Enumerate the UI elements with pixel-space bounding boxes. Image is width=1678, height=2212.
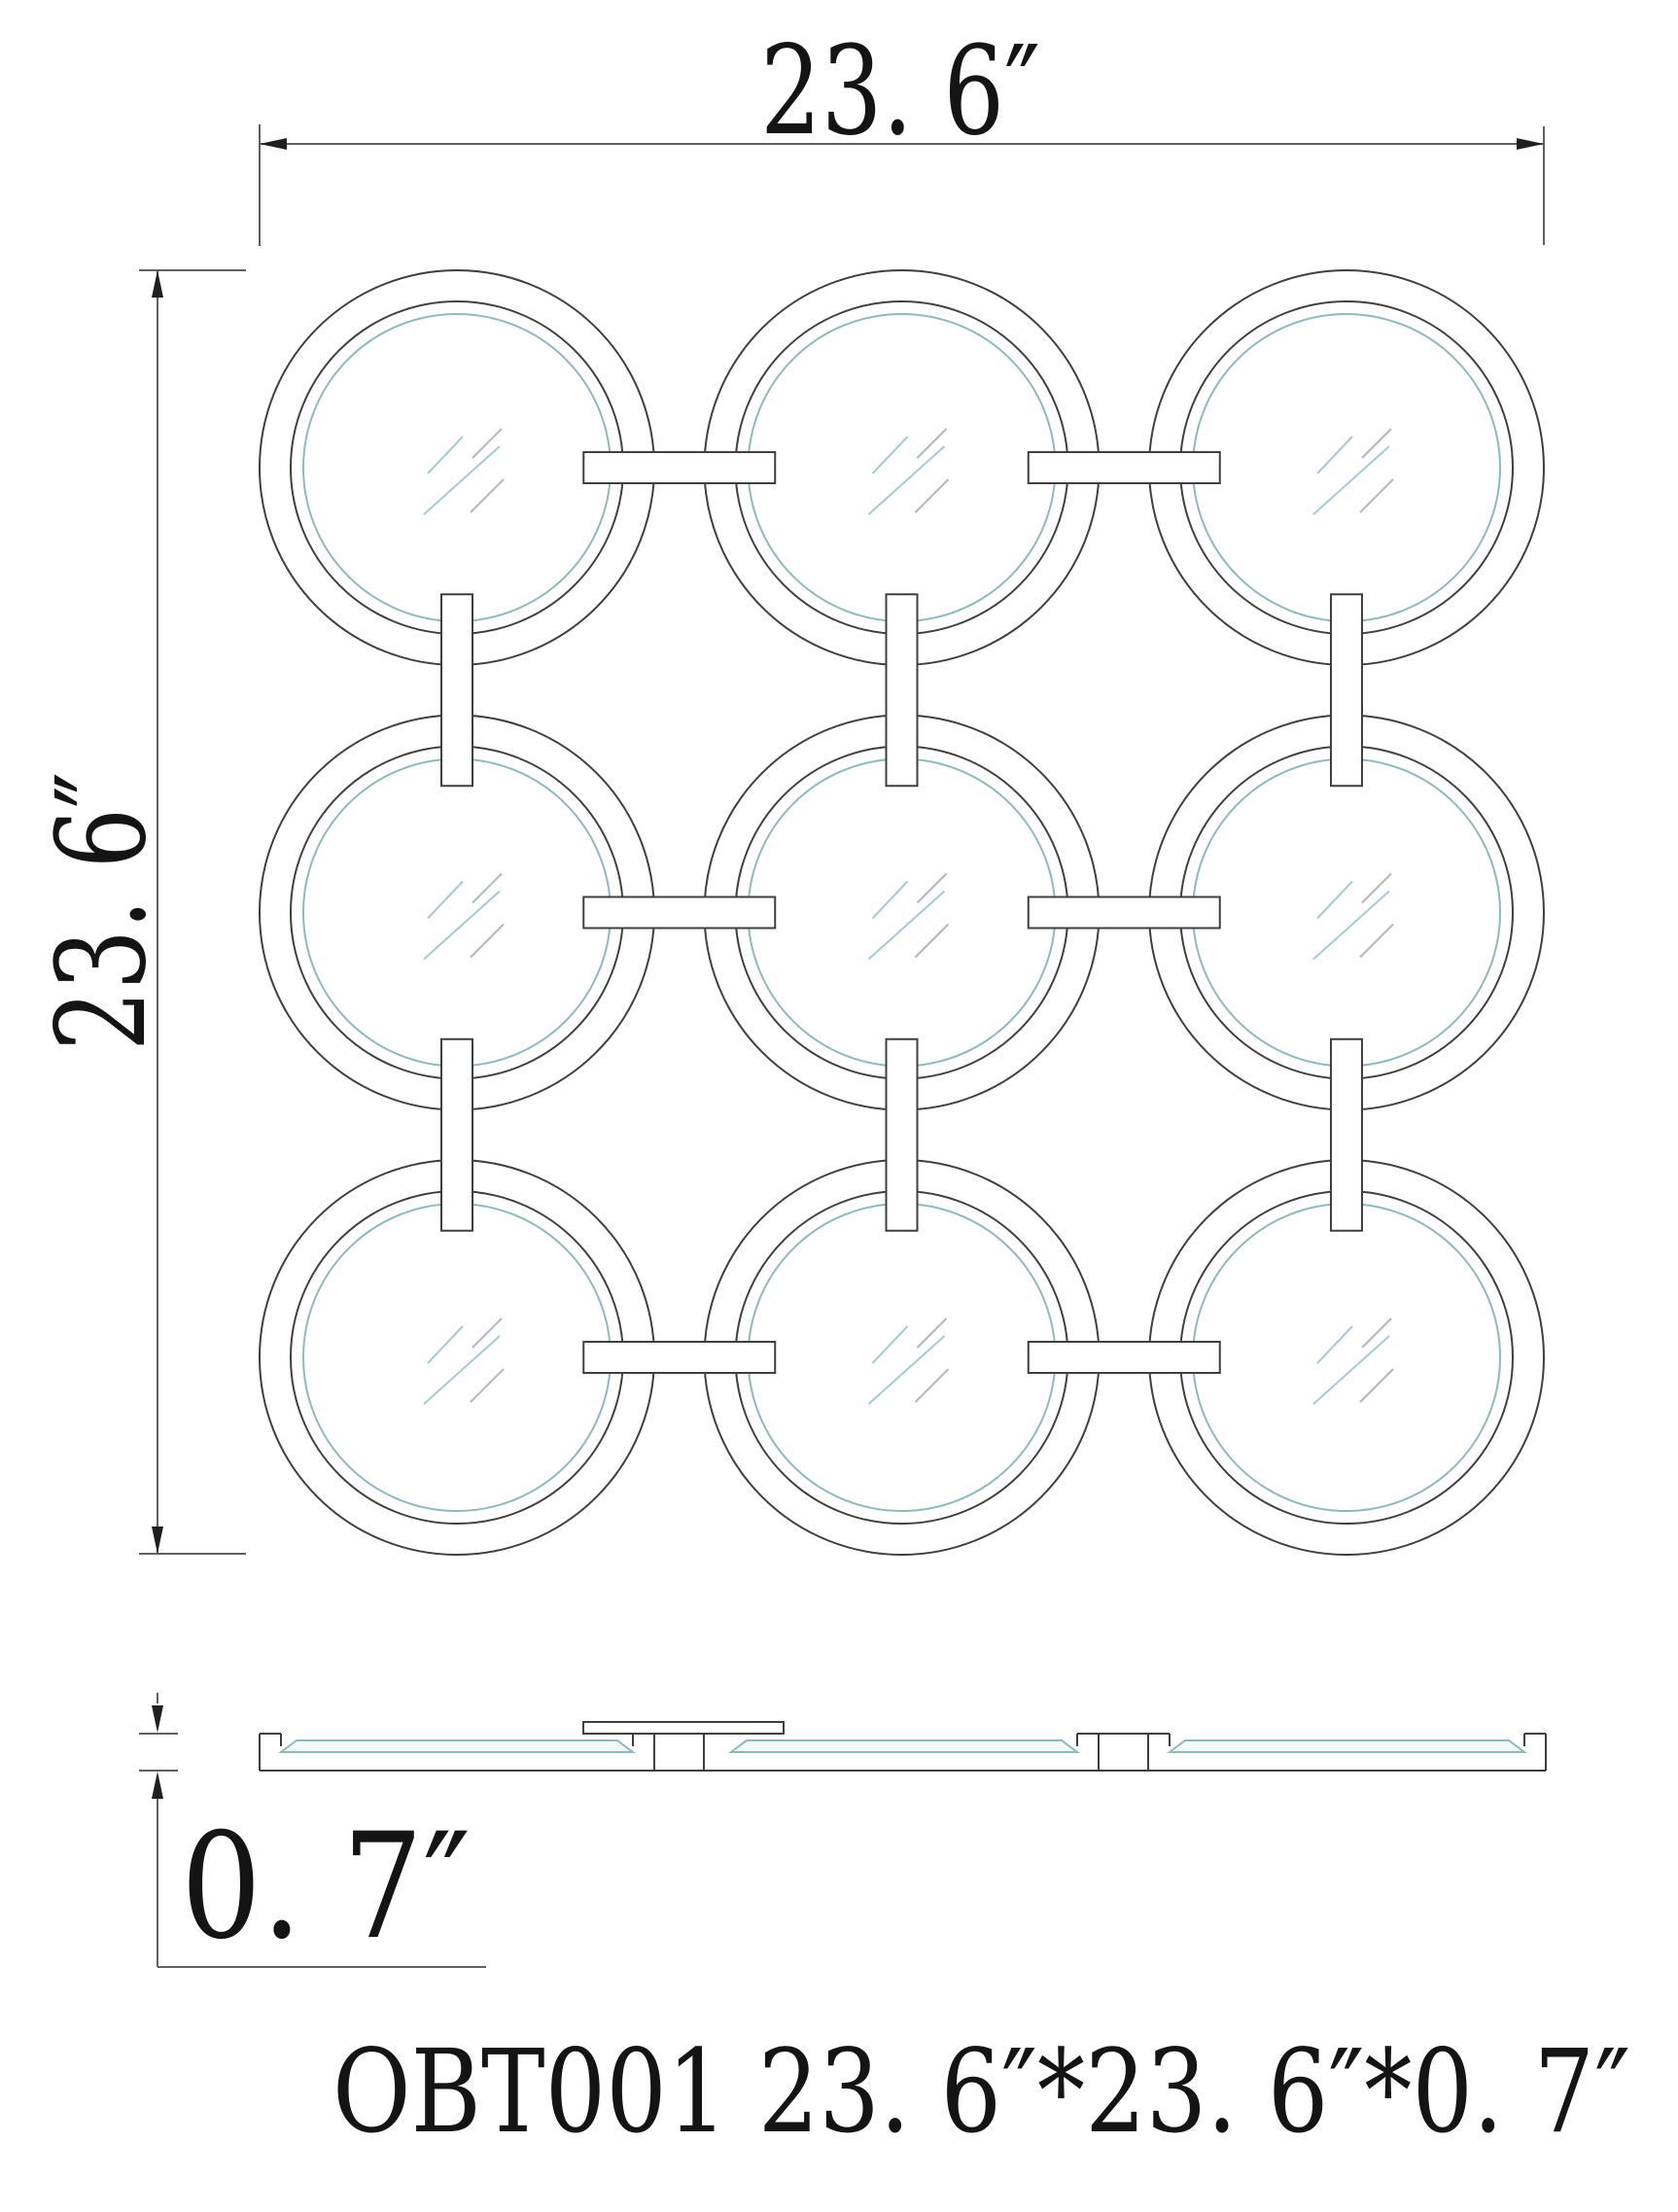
frame-inner-circle [291,301,623,634]
dim-height-label: 23. 6″ [30,772,173,1051]
frame-inner-circle [1180,747,1513,1079]
mirror-glass-circle [1193,314,1500,621]
link-horizontal [583,1342,775,1373]
link-vertical [887,1039,918,1231]
link-vertical [887,594,918,786]
glass-hatch-stroke [1313,1336,1389,1404]
glass-hatch-stroke [1317,437,1352,474]
dim-width-label: 23. 6″ [760,19,1040,162]
glass-hatch-stroke [428,882,463,919]
glass-hatch-stroke [472,874,502,903]
glass-inset-3 [1170,1740,1524,1752]
profile-link-tab [583,1722,784,1734]
glass-inset-2 [731,1740,1077,1752]
glass-hatch-stroke [471,479,504,512]
glass-hatch-stroke [869,1336,945,1404]
arrow-up-icon [152,1772,163,1799]
glass-hatch-stroke [1360,925,1393,958]
height-dimension: 23. 6″ [30,270,246,1554]
glass-hatch-stroke [916,479,949,512]
arrow-right-icon [1517,138,1544,150]
glass-hatch-stroke [472,1318,502,1348]
link-horizontal [1029,1342,1220,1373]
dim-depth-label: 0. 7″ [181,1803,471,1972]
frame-inner-circle [291,747,623,1079]
glass-hatch-stroke [873,1326,908,1363]
frame-inner-circle [1180,1191,1513,1524]
glass-hatch-stroke [424,1336,500,1404]
glass-hatch-stroke [428,437,463,474]
glass-hatch-stroke [428,1326,463,1363]
mirror-glass-circle [303,759,611,1067]
mirror-glass-circle [749,759,1056,1067]
glass-hatch-stroke [1362,874,1391,903]
glass-hatch-stroke [472,429,502,458]
arrow-up-icon [152,270,163,298]
frame-inner-circle [736,747,1068,1079]
frame-inner-circle [291,1191,623,1524]
glass-hatch-stroke [1317,882,1352,919]
glass-inset-1 [281,1740,633,1752]
technical-drawing: 23. 6″ 23. 6″ 0. 7″ OBT001 23. 6″*23. 6″… [0,0,1678,2212]
glass-hatch-stroke [869,446,945,514]
mirror-glass-circle [303,1204,611,1511]
glass-hatch-stroke [1362,429,1391,458]
link-vertical [441,1039,472,1231]
link-vertical [1331,1039,1362,1231]
glass-hatch-stroke [471,925,504,958]
glass-hatch-stroke [873,437,908,474]
glass-hatch-stroke [424,892,500,960]
glass-hatch-stroke [873,882,908,919]
glass-hatch-stroke [916,925,949,958]
width-dimension: 23. 6″ [260,19,1544,246]
arrow-down-icon [152,1705,163,1733]
mirror-glass-circle [1193,1204,1500,1511]
front-view [260,270,1544,1555]
glass-hatch-stroke [1313,892,1389,960]
frame-inner-circle [736,1191,1068,1524]
link-vertical [441,594,472,786]
arrow-left-icon [260,138,287,150]
glass-hatch-stroke [916,1369,949,1402]
glass-hatch-stroke [918,874,947,903]
glass-hatch-stroke [471,1369,504,1402]
glass-hatch-stroke [918,429,947,458]
link-horizontal [1029,452,1220,483]
glass-hatch-stroke [1360,479,1393,512]
mirror-glass-circle [749,314,1056,621]
mirror-glass-circle [749,1204,1056,1511]
glass-hatch-stroke [918,1318,947,1348]
glass-hatch-stroke [1360,1369,1393,1402]
arrow-down-icon [152,1527,163,1554]
link-vertical [1331,594,1362,786]
glass-hatch-stroke [1362,1318,1391,1348]
link-horizontal [1029,897,1220,929]
mirror-glass-circle [303,314,611,621]
frame-inner-circle [1180,301,1513,634]
link-horizontal [583,452,775,483]
mirror-glass-circle [1193,759,1500,1067]
drawing-canvas: 23. 6″ 23. 6″ 0. 7″ OBT001 23. 6″*23. 6″… [0,0,1678,2212]
glass-hatch-stroke [1313,446,1389,514]
link-horizontal [583,897,775,929]
product-code-label: OBT001 23. 6″*23. 6″*0. 7″ [332,2024,1630,2159]
glass-hatch-stroke [869,892,945,960]
glass-hatch-stroke [1317,1326,1352,1363]
frame-inner-circle [736,301,1068,634]
glass-hatch-stroke [424,446,500,514]
side-view [260,1722,1546,1771]
